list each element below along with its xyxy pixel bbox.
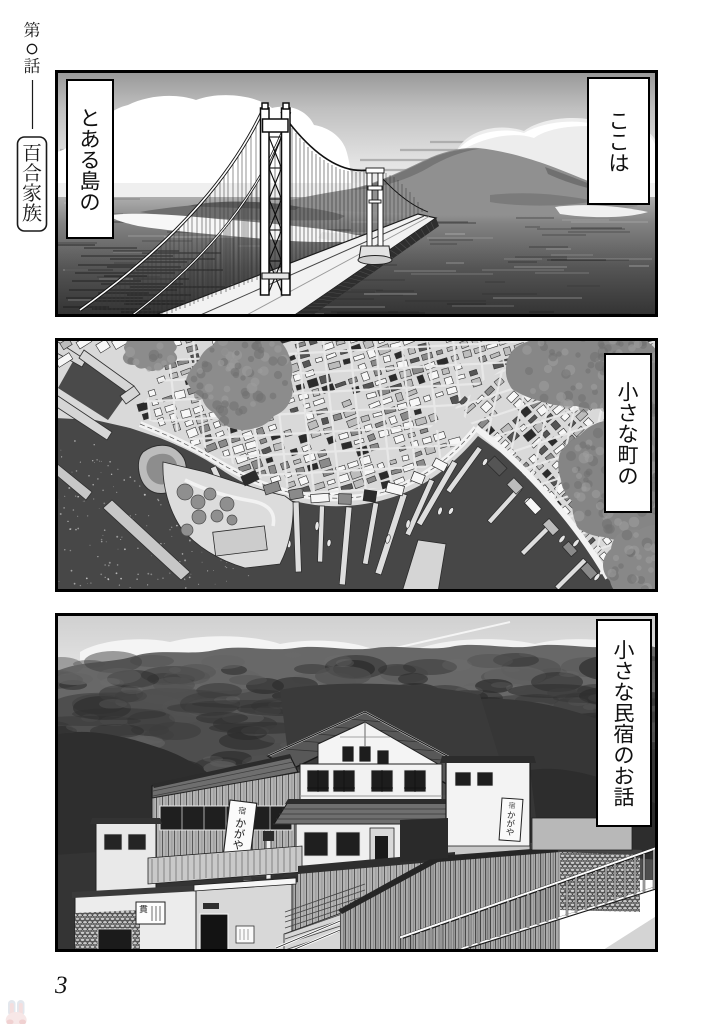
svg-text:3: 3 xyxy=(54,972,68,999)
